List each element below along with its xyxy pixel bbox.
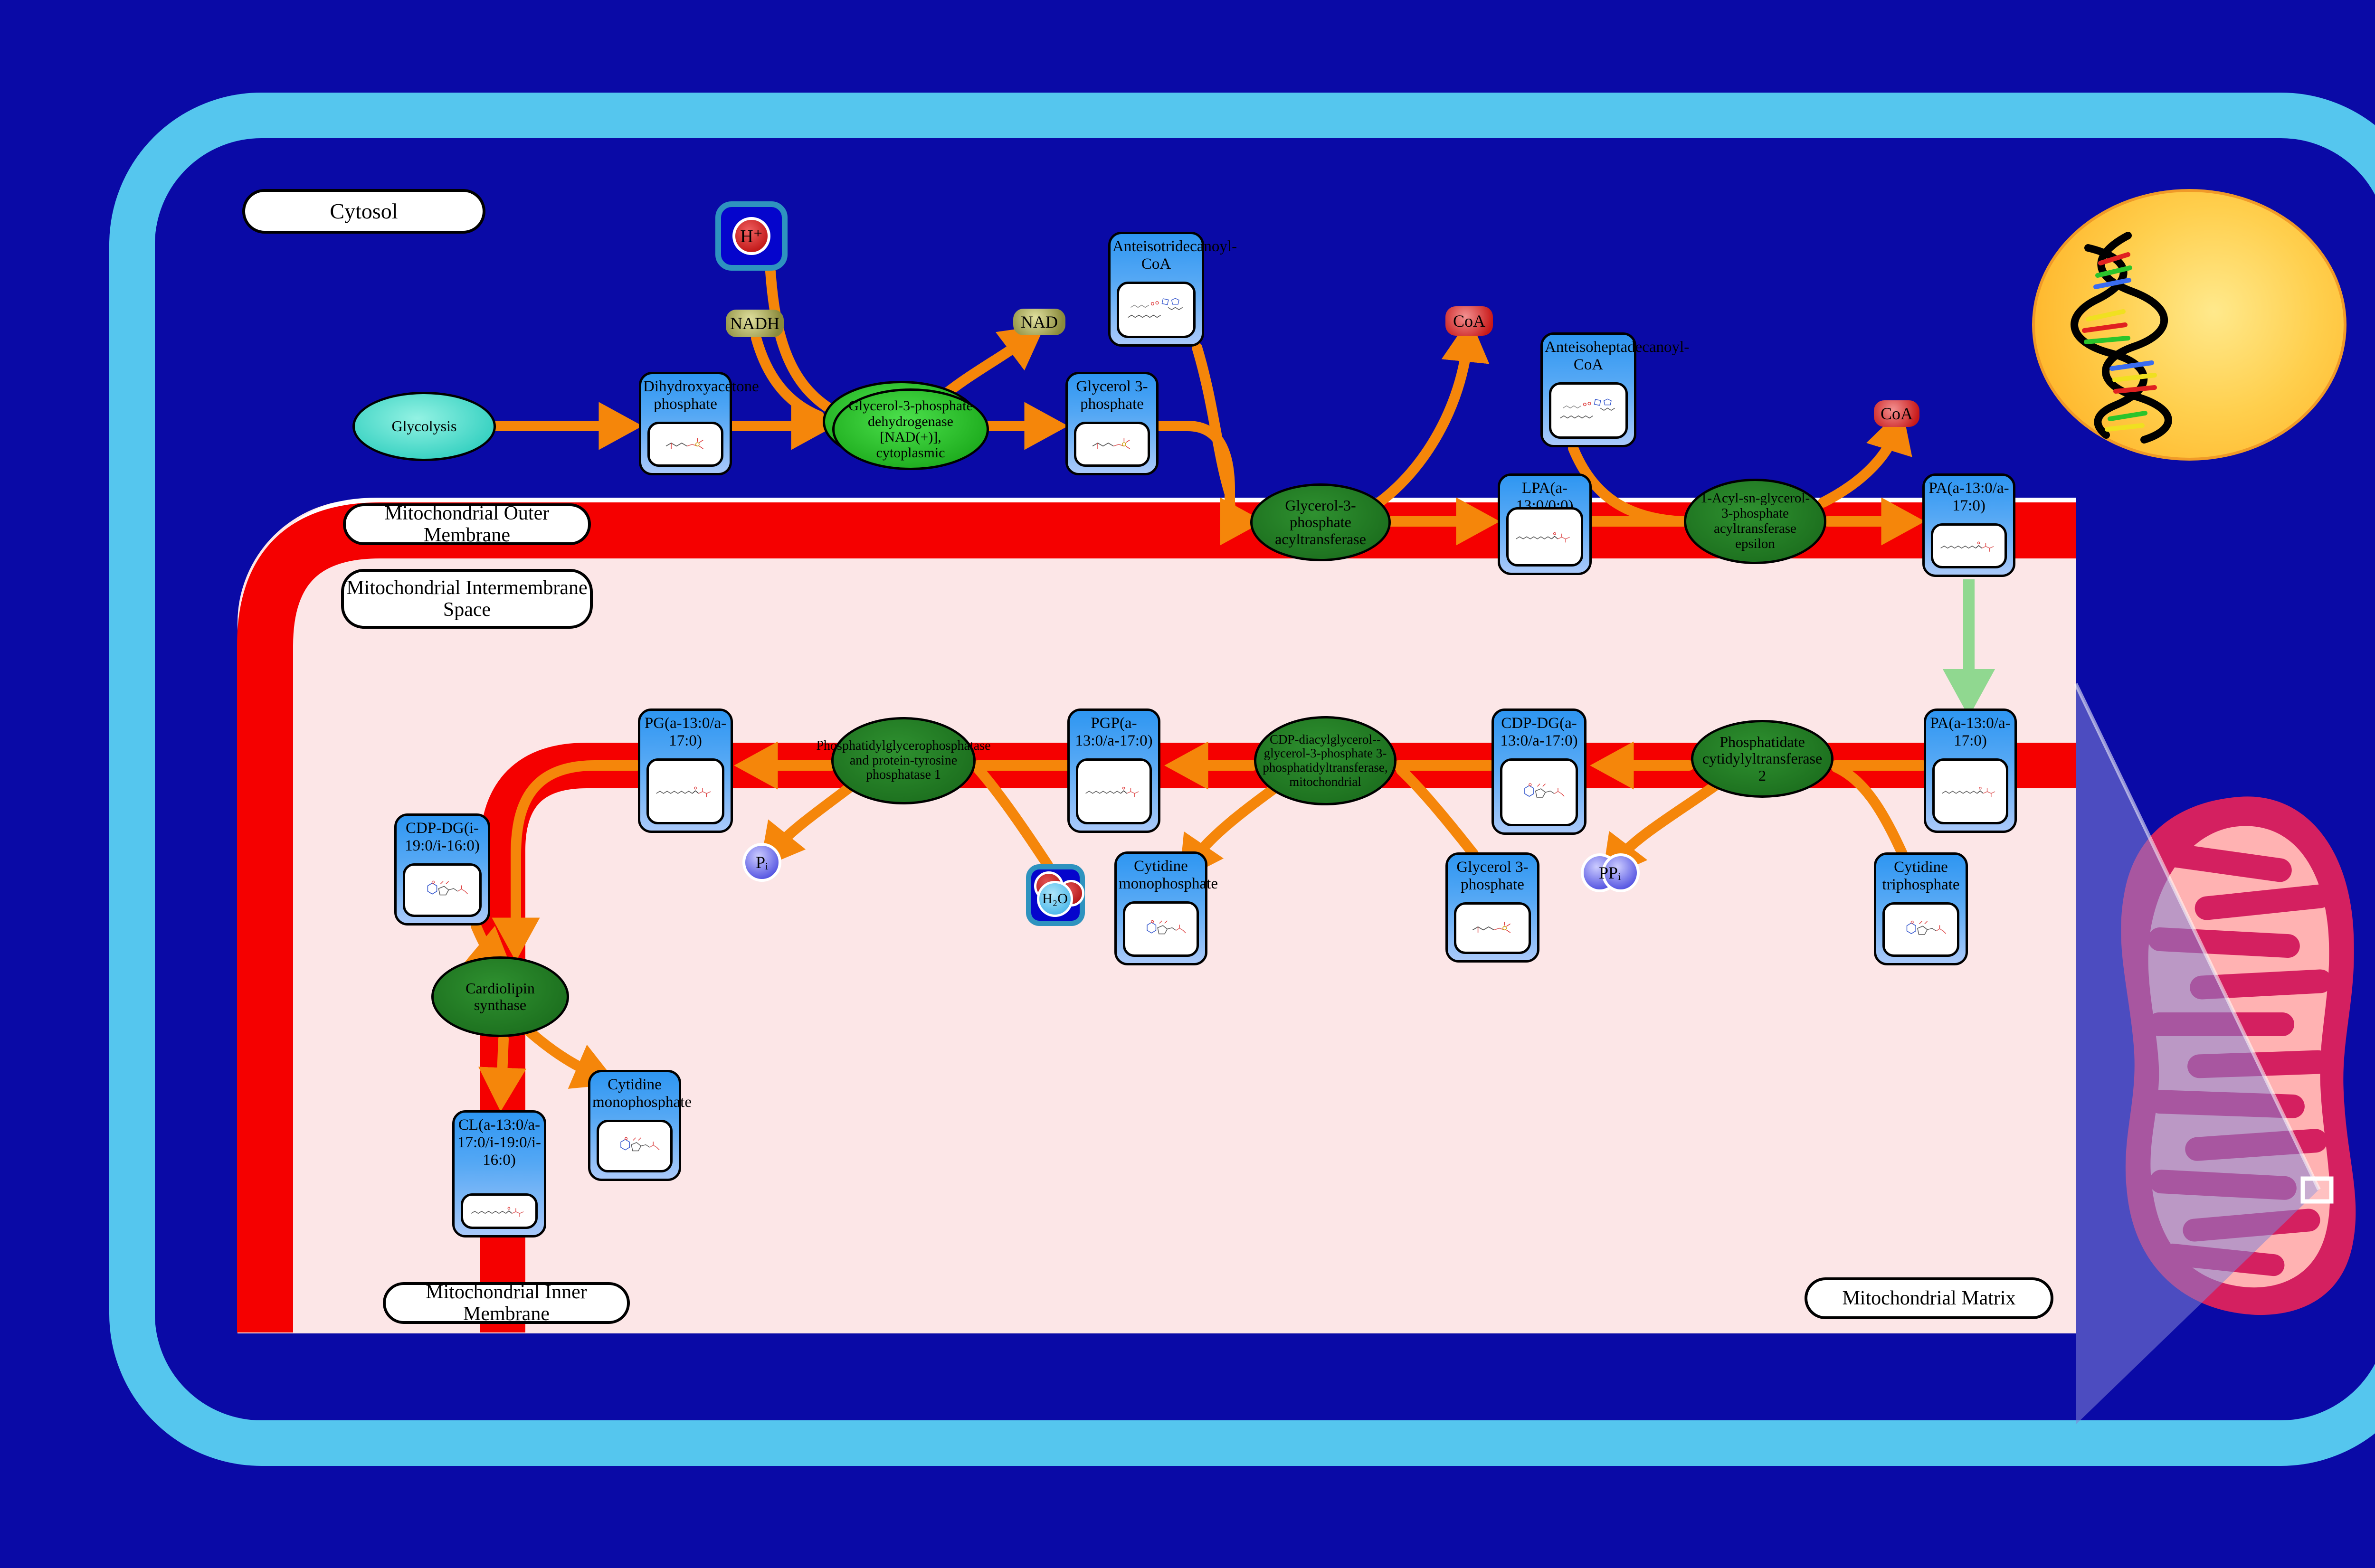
- molecule-structure: [1938, 532, 2000, 560]
- cofactor-nadh[interactable]: NADH: [726, 310, 784, 337]
- enzyme-cardiolipin-synthase[interactable]: Cardiolipin synthase: [431, 956, 569, 1037]
- pyrophosphate-ppi[interactable]: PPᵢ: [1581, 852, 1639, 893]
- molecule-structure: [655, 430, 716, 459]
- cofactor-coa-2[interactable]: CoA: [1874, 400, 1919, 427]
- metabolite-box-cmp-mid[interactable]: Cytidine monophosphate: [1114, 851, 1207, 965]
- molecule-structure: [1124, 292, 1188, 328]
- metabolite-box-pg[interactable]: PG(a-13:0/a-17:0): [638, 708, 733, 833]
- nucleus: [2032, 189, 2346, 461]
- enzyme-pgs1[interactable]: CDP-diacylglycerol--glycerol-3-phosphate…: [1254, 716, 1396, 805]
- water-box[interactable]: H₂O: [1026, 864, 1085, 926]
- molecule-structure: [654, 770, 717, 812]
- region-label-inner-membrane: Mitochondrial Inner Membrane: [383, 1282, 630, 1324]
- molecule-structure: [1462, 912, 1524, 945]
- metabolite-box-pgp[interactable]: PGP(a-13:0/a-17:0): [1067, 708, 1160, 833]
- enzyme-ptpmt1[interactable]: Phosphatidylglycerophosphatase and prote…: [831, 717, 976, 804]
- molecule-structure: [1083, 770, 1145, 812]
- phosphate-pi[interactable]: Pᵢ: [742, 843, 781, 882]
- metabolite-box-anteisoheptadecanoyl-coa[interactable]: Anteisoheptadecanoyl-CoA: [1540, 332, 1636, 447]
- molecule-structure: [1557, 392, 1620, 428]
- molecule-structure: [1130, 911, 1192, 947]
- metabolite-box-g3p-bottom[interactable]: Glycerol 3-phosphate: [1445, 852, 1539, 963]
- molecule-structure: [1890, 912, 1952, 947]
- region-label-matrix: Mitochondrial Matrix: [1805, 1277, 2053, 1319]
- molecule-structure: [468, 1200, 531, 1222]
- enzyme-gpd-cytoplasmic[interactable]: Glycerol-3-phosphate dehydrogenase [NAD(…: [832, 388, 989, 470]
- mitochondrion-illustration: [2104, 788, 2375, 1330]
- water-molecule-icon: H₂O: [1037, 881, 1073, 917]
- metabolite-box-anteisotridecanoyl-coa[interactable]: Anteisotridecanoyl-CoA: [1108, 232, 1204, 347]
- proton-carrier-box[interactable]: H⁺: [715, 201, 788, 271]
- region-label-cytosol: Cytosol: [242, 189, 485, 234]
- h-plus-icon: H⁺: [732, 217, 770, 255]
- enzyme-agpat-epsilon[interactable]: 1-Acyl-sn-glycerol-3-phosphate acyltrans…: [1684, 479, 1826, 564]
- region-label-intermembrane-space: Mitochondrial Intermembrane Space: [341, 569, 593, 629]
- metabolite-box-cdp-dg-i[interactable]: CDP-DG(i-19:0/i-16:0): [394, 813, 490, 926]
- metabolite-box-ctp[interactable]: Cytidine triphosphate: [1874, 852, 1968, 965]
- metabolite-box-dhap[interactable]: Dihydroxyacetone phosphate: [639, 372, 732, 475]
- enzyme-pcyt2[interactable]: Phosphatidate cytidylyltransferase 2: [1691, 720, 1833, 798]
- metabolite-box-cl[interactable]: CL(a-13:0/a-17:0/i-19:0/i-16:0): [452, 1110, 546, 1237]
- molecule-structure: [1514, 518, 1576, 556]
- molecule-structure: [1508, 770, 1570, 814]
- process-glycolysis[interactable]: Glycolysis: [352, 392, 496, 461]
- metabolite-box-cmp-left[interactable]: Cytidine monophosphate: [588, 1070, 681, 1181]
- enzyme-gpat[interactable]: Glycerol-3-phosphate acyltransferase: [1250, 483, 1391, 561]
- molecule-structure: [410, 873, 474, 907]
- cofactor-nad[interactable]: NAD: [1013, 309, 1065, 335]
- metabolite-box-cdp-dg-a[interactable]: CDP-DG(a-13:0/a-17:0): [1491, 708, 1586, 835]
- metabolite-box-pa-outer[interactable]: PA(a-13:0/a-17:0): [1922, 473, 2015, 577]
- metabolite-box-g3p-top[interactable]: Glycerol 3-phosphate: [1065, 372, 1159, 475]
- molecule-structure: [604, 1129, 665, 1163]
- molecule-structure: [1940, 770, 2001, 812]
- cofactor-coa-1[interactable]: CoA: [1445, 306, 1493, 336]
- molecule-structure: [1082, 430, 1143, 459]
- dna-helix-icon: [2035, 192, 2339, 453]
- metabolite-box-lpa[interactable]: LPA(a-13:0/0:0): [1498, 473, 1592, 575]
- metabolite-box-pa-inner[interactable]: PA(a-13:0/a-17:0): [1924, 708, 2017, 833]
- region-label-outer-membrane: Mitochondrial Outer Membrane: [343, 503, 591, 545]
